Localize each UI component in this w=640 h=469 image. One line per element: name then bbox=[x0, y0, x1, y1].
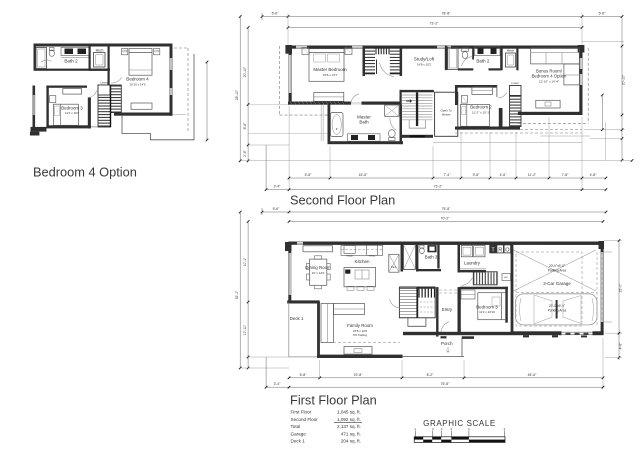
svg-text:Bedroom 4 Option: Bedroom 4 Option bbox=[33, 165, 137, 180]
svg-text:78'-8": 78'-8" bbox=[442, 12, 451, 16]
svg-text:9'-8": 9'-8" bbox=[473, 173, 481, 177]
svg-text:5'-8": 5'-8" bbox=[305, 173, 313, 177]
svg-text:11'2 x 10'10: 11'2 x 10'10 bbox=[479, 310, 495, 314]
svg-text:Entry: Entry bbox=[442, 307, 453, 312]
svg-text:75'-8": 75'-8" bbox=[441, 382, 450, 386]
svg-text:Deck 1: Deck 1 bbox=[290, 316, 304, 321]
svg-text:0: 0 bbox=[415, 427, 417, 431]
svg-text:Mech: Mech bbox=[96, 49, 104, 53]
svg-text:Family Room: Family Room bbox=[347, 323, 373, 328]
svg-text:A/C: A/C bbox=[504, 276, 508, 279]
svg-text:Garage: Garage bbox=[291, 431, 307, 436]
svg-text:28'-10": 28'-10" bbox=[235, 89, 239, 100]
svg-text:4'-6": 4'-6" bbox=[619, 342, 623, 350]
svg-text:Below: Below bbox=[442, 113, 451, 117]
svg-text:Bedroom 4: Bedroom 4 bbox=[126, 77, 149, 82]
svg-text:Second Floor Plan: Second Floor Plan bbox=[290, 193, 395, 208]
svg-text:Dining Room: Dining Room bbox=[305, 265, 331, 270]
svg-text:Master Bedroom: Master Bedroom bbox=[313, 67, 347, 72]
svg-text:9'0 Ceiling: 9'0 Ceiling bbox=[353, 333, 367, 337]
svg-text:First Floor Plan: First Floor Plan bbox=[290, 393, 377, 408]
svg-text:2,137 sq. ft.: 2,137 sq. ft. bbox=[337, 424, 361, 429]
svg-text:Kitchen: Kitchen bbox=[354, 259, 370, 264]
svg-text:15'-6": 15'-6" bbox=[359, 173, 368, 177]
svg-text:Range: Range bbox=[346, 256, 353, 258]
svg-text:20'-10": 20'-10" bbox=[243, 66, 247, 77]
svg-text:Bath 2: Bath 2 bbox=[476, 59, 490, 64]
svg-text:32'-1": 32'-1" bbox=[235, 290, 239, 299]
svg-text:2-Car Garage: 2-Car Garage bbox=[543, 281, 571, 286]
svg-text:45'-6": 45'-6" bbox=[528, 373, 537, 377]
svg-text:8'-2": 8'-2" bbox=[427, 373, 435, 377]
svg-text:471 sq. ft.: 471 sq. ft. bbox=[341, 431, 361, 436]
svg-text:Bath: Bath bbox=[359, 120, 369, 125]
svg-text:15'8 x 13'7: 15'8 x 13'7 bbox=[323, 73, 338, 77]
svg-text:GRAPHIC SCALE: GRAPHIC SCALE bbox=[423, 419, 496, 428]
svg-text:10'10 x 14'0: 10'10 x 14'0 bbox=[130, 82, 146, 86]
svg-text:Pant.: Pant. bbox=[391, 265, 397, 269]
svg-text:11'-2" x 10'-1": 11'-2" x 10'-1" bbox=[472, 110, 490, 114]
svg-text:Bedroom 3: Bedroom 3 bbox=[61, 105, 83, 110]
svg-text:Study/Loft: Study/Loft bbox=[414, 57, 435, 62]
svg-text:4'-6": 4'-6" bbox=[500, 173, 508, 177]
svg-text:Linen: Linen bbox=[100, 81, 108, 85]
svg-text:R: R bbox=[498, 248, 502, 254]
svg-text:Laundry: Laundry bbox=[464, 261, 481, 266]
svg-text:2'-6": 2'-6" bbox=[243, 149, 247, 157]
svg-text:75'-8": 75'-8" bbox=[442, 207, 451, 211]
svg-text:11'2 x 10'2: 11'2 x 10'2 bbox=[65, 111, 79, 115]
svg-text:20'-10": 20'-10" bbox=[622, 74, 626, 85]
svg-text:73'-2": 73'-2" bbox=[430, 22, 439, 26]
svg-text:10'-1": 10'-1" bbox=[243, 257, 247, 266]
svg-text:7'-8": 7'-8" bbox=[562, 173, 570, 177]
svg-text:204 sq. ft.: 204 sq. ft. bbox=[341, 439, 361, 444]
svg-text:Bath 3: Bath 3 bbox=[425, 255, 438, 260]
svg-text:Porch: Porch bbox=[441, 341, 453, 346]
svg-text:5'-6": 5'-6" bbox=[273, 207, 281, 211]
svg-text:3'-4": 3'-4" bbox=[274, 185, 282, 189]
svg-text:10' x 12'0: 10' x 12'0 bbox=[312, 271, 325, 275]
svg-text:5'-6": 5'-6" bbox=[599, 12, 607, 16]
svg-text:12'-10" x 14'-4": 12'-10" x 14'-4" bbox=[539, 79, 559, 83]
svg-text:1,092 sq. ft.: 1,092 sq. ft. bbox=[337, 417, 361, 422]
svg-text:11'-2": 11'-2" bbox=[528, 173, 537, 177]
svg-text:5'-6": 5'-6" bbox=[272, 12, 280, 16]
svg-text:O: O bbox=[505, 248, 510, 254]
svg-text:20'-0"x9'-0": 20'-0"x9'-0" bbox=[549, 264, 565, 268]
svg-text:Refrig.: Refrig. bbox=[369, 255, 376, 258]
svg-text:Parking Area: Parking Area bbox=[548, 269, 566, 273]
svg-text:5'-8": 5'-8" bbox=[300, 373, 308, 377]
svg-text:25'-0": 25'-0" bbox=[619, 283, 623, 292]
svg-text:1,045 sq. ft.: 1,045 sq. ft. bbox=[337, 410, 361, 415]
svg-text:Linen: Linen bbox=[512, 81, 520, 85]
svg-text:Mech: Mech bbox=[507, 49, 515, 53]
svg-text:73'-2": 73'-2" bbox=[434, 185, 443, 189]
svg-text:4'-8": 4'-8" bbox=[590, 173, 598, 177]
svg-text:3'-4": 3'-4" bbox=[274, 382, 282, 386]
svg-text:17'-11": 17'-11" bbox=[243, 324, 247, 335]
svg-text:Second Floor: Second Floor bbox=[291, 417, 319, 422]
svg-text:Deck 1: Deck 1 bbox=[291, 439, 306, 444]
svg-text:70'-2": 70'-2" bbox=[441, 217, 450, 221]
svg-text:Total: Total bbox=[291, 424, 301, 429]
svg-text:7'-4": 7'-4" bbox=[444, 173, 452, 177]
svg-text:14'8 x 10'2: 14'8 x 10'2 bbox=[417, 63, 432, 67]
svg-text:Bath 2: Bath 2 bbox=[64, 59, 78, 64]
svg-text:0: 0 bbox=[504, 427, 506, 431]
svg-text:Bedroom 4 Option: Bedroom 4 Option bbox=[532, 73, 567, 78]
svg-text:19'-8": 19'-8" bbox=[354, 373, 363, 377]
svg-text:8'-6": 8'-6" bbox=[243, 122, 247, 130]
svg-text:Bedroom 2: Bedroom 2 bbox=[470, 105, 492, 110]
svg-text:First Floor: First Floor bbox=[291, 410, 312, 415]
svg-text:Bedroom 3: Bedroom 3 bbox=[476, 305, 498, 310]
